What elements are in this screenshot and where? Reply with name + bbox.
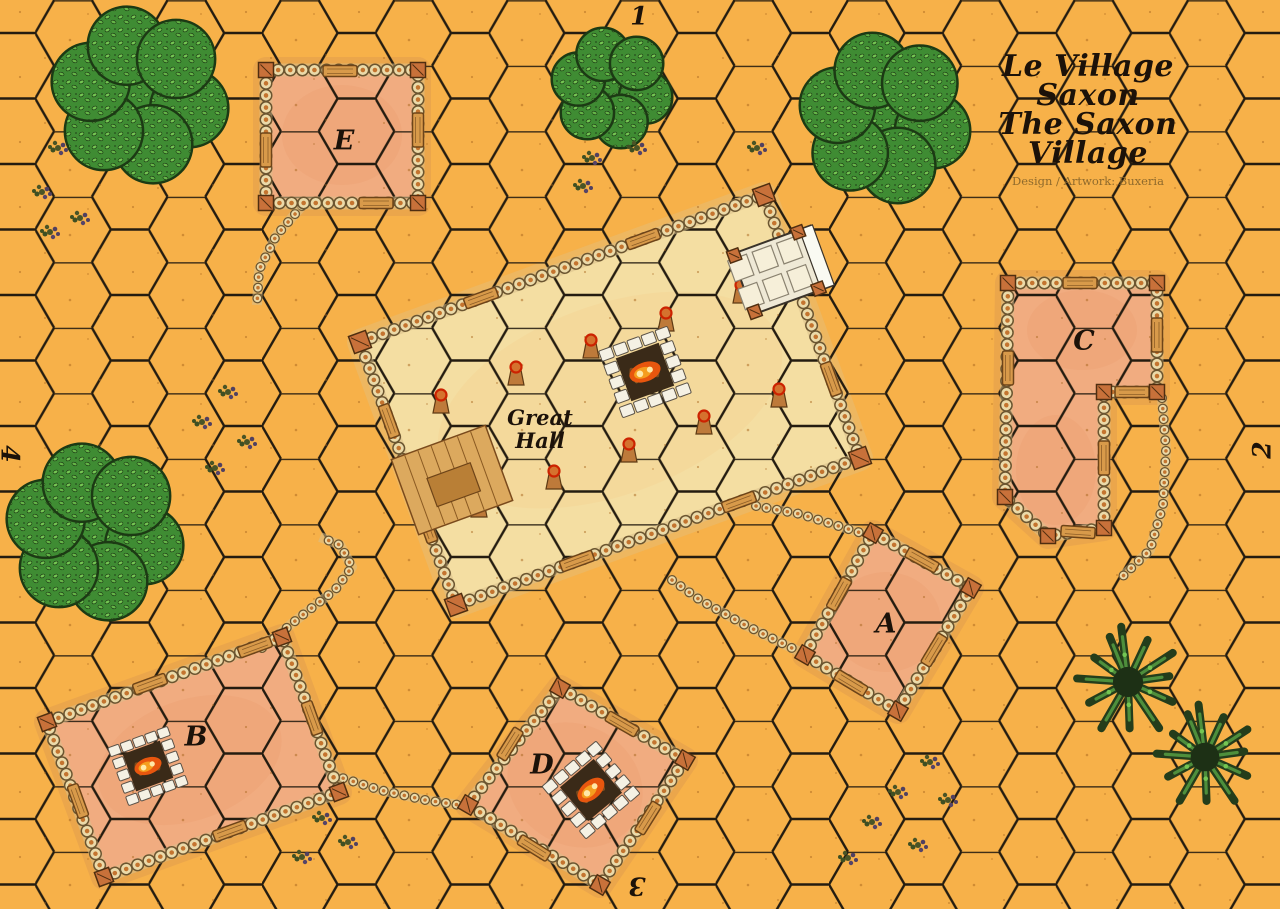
label-building-a: A (876, 609, 897, 640)
label-building-e: E (334, 126, 355, 157)
edge-number-bottom: 3 (628, 872, 645, 901)
edge-number-left: 4 (0, 445, 25, 462)
label-building-d: D (530, 750, 553, 781)
page-title-line2: The Saxon Village (954, 110, 1222, 168)
label-building-c: C (1073, 326, 1095, 357)
label-building-b: B (185, 722, 208, 753)
edge-number-top: 1 (630, 2, 647, 31)
map-title: Le Village Saxon The Saxon Village Desig… (954, 52, 1222, 188)
saxon-village-map: Le Village Saxon The Saxon Village Desig… (0, 0, 1280, 909)
edge-number-right: 2 (1248, 441, 1277, 458)
credit-text: Design / Artwork: Buxeria (954, 174, 1222, 188)
page-title-line1: Le Village Saxon (954, 52, 1222, 110)
label-great-hall-line1: Great (507, 406, 573, 429)
label-great-hall-line2: Hall (507, 429, 573, 452)
label-great-hall: Great Hall (507, 406, 573, 452)
